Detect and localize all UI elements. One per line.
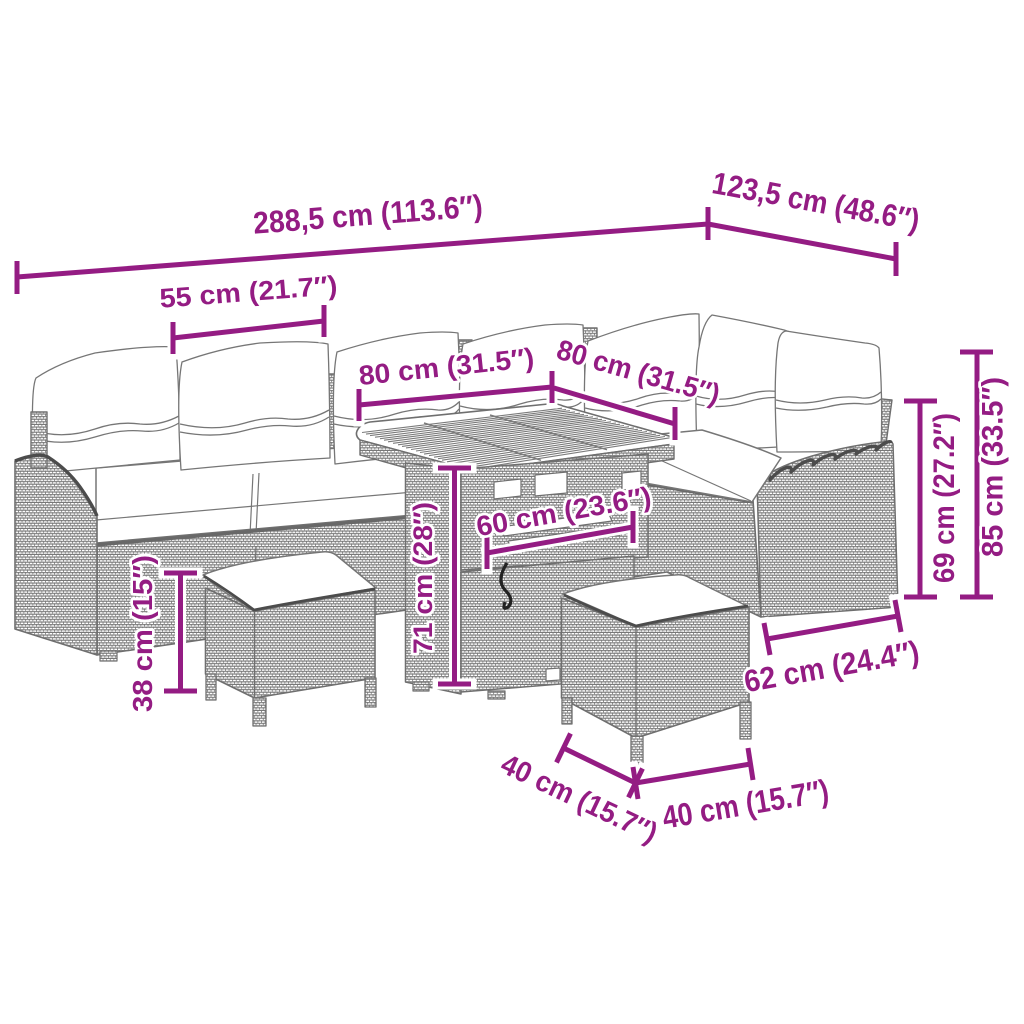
svg-text:85 cm (33.5″): 85 cm (33.5″) (977, 377, 1010, 557)
svg-text:71 cm (28″): 71 cm (28″) (408, 502, 438, 654)
svg-text:55 cm (21.7″): 55 cm (21.7″) (159, 270, 339, 314)
svg-text:288,5 cm (113.6″): 288,5 cm (113.6″) (252, 188, 484, 241)
svg-text:40 cm (15.7″): 40 cm (15.7″) (660, 772, 832, 835)
svg-text:69 cm (27.2″): 69 cm (27.2″) (928, 413, 961, 583)
svg-text:38 cm (15″): 38 cm (15″) (127, 555, 158, 712)
